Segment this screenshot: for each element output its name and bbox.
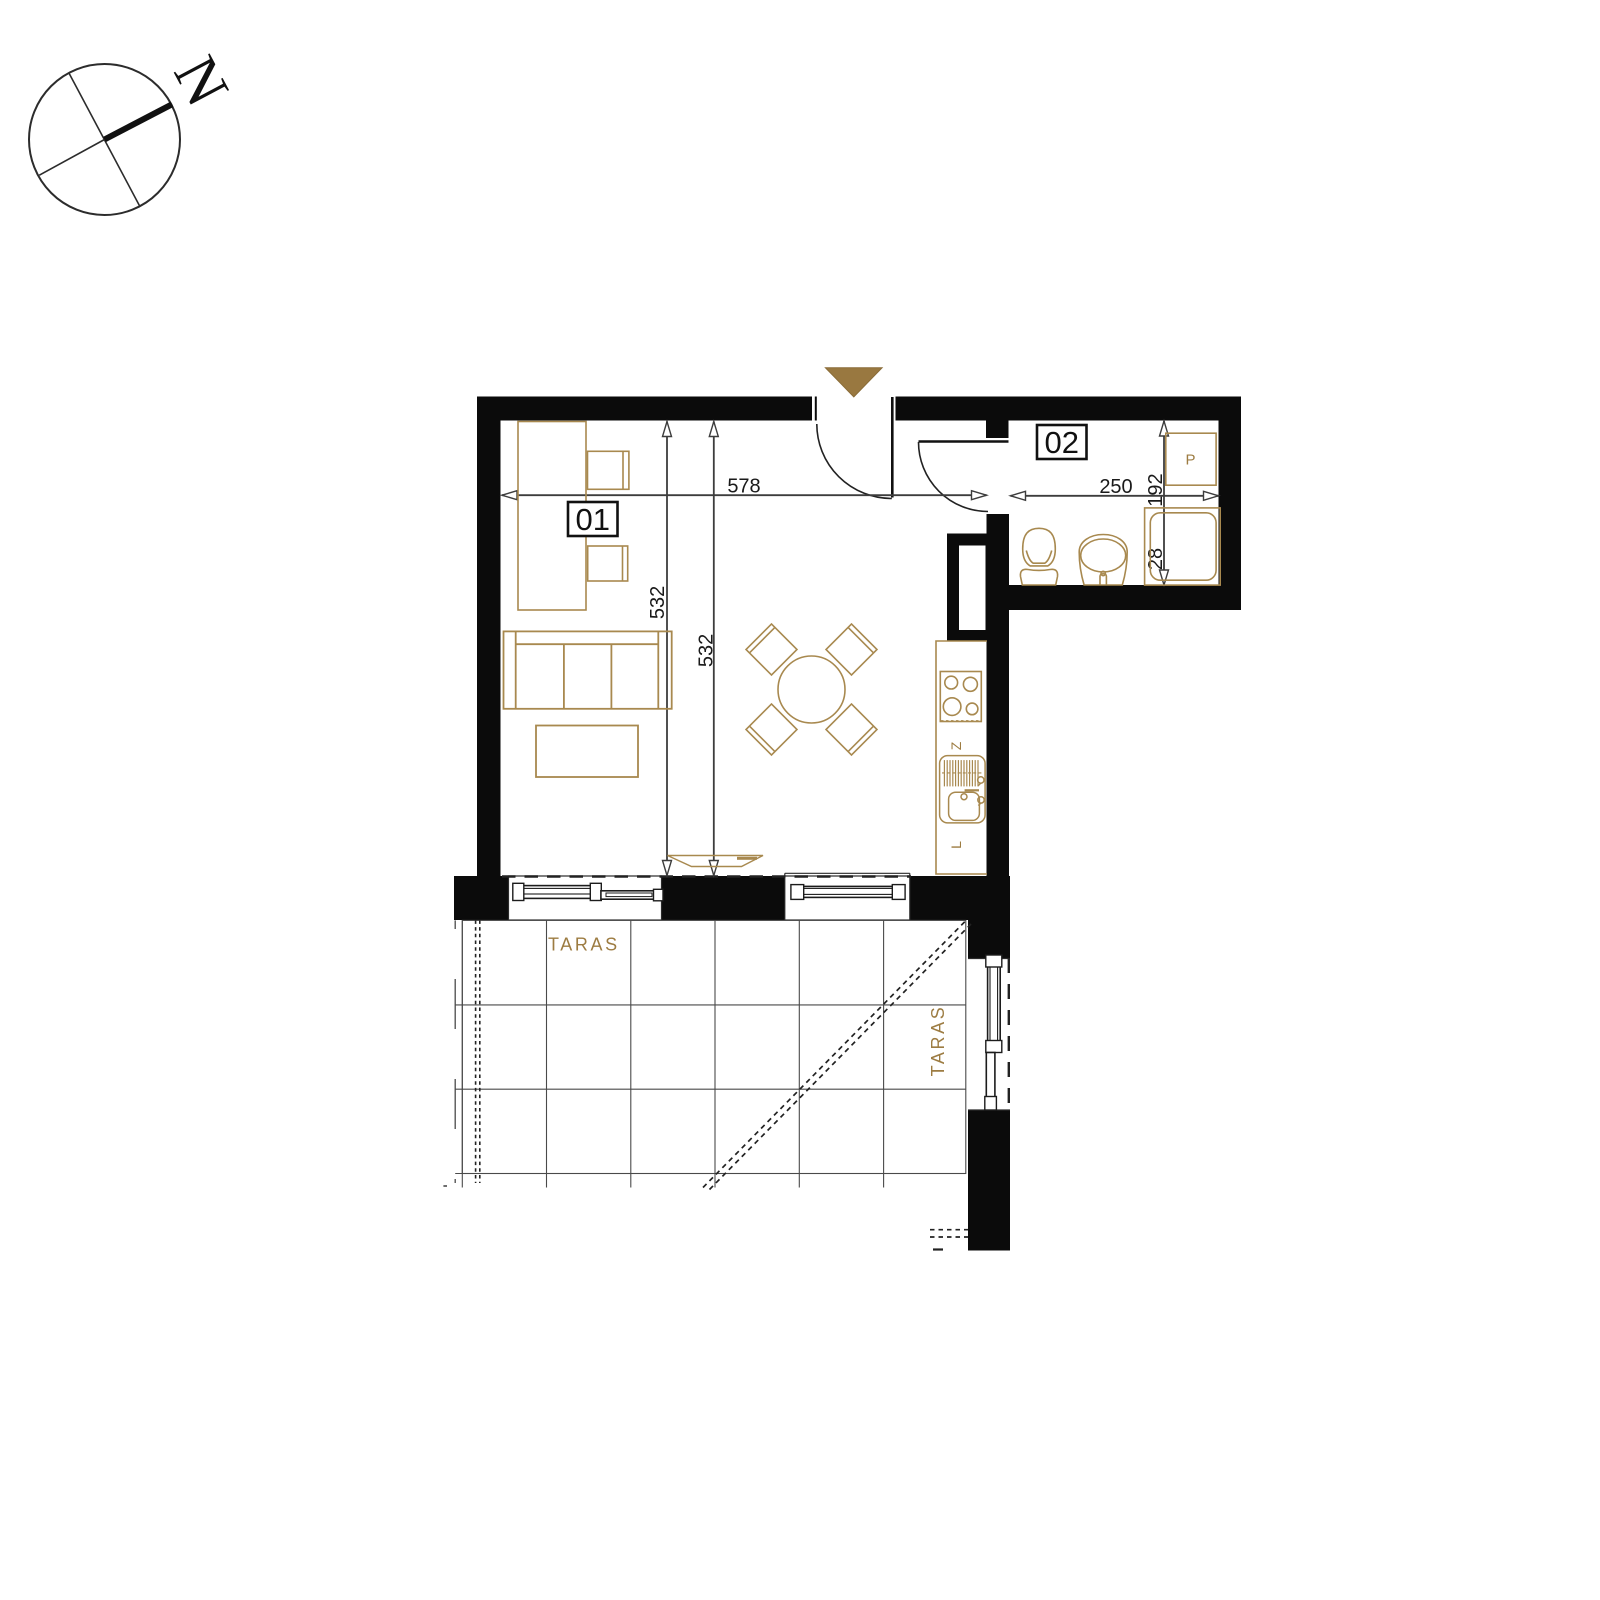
svg-text:01: 01 — [576, 502, 610, 537]
svg-text:TARAS: TARAS — [928, 1005, 948, 1077]
svg-text:Z: Z — [948, 741, 964, 750]
svg-text:192: 192 — [1145, 473, 1167, 506]
svg-text:TARAS: TARAS — [548, 935, 620, 955]
svg-text:532: 532 — [647, 586, 669, 619]
svg-text:532: 532 — [696, 634, 718, 667]
svg-text:02: 02 — [1045, 425, 1079, 460]
svg-text:P: P — [1185, 452, 1195, 469]
svg-text:250: 250 — [1099, 476, 1132, 498]
svg-text:28: 28 — [1145, 548, 1167, 570]
svg-text:L: L — [948, 841, 964, 849]
svg-text:578: 578 — [727, 476, 760, 498]
